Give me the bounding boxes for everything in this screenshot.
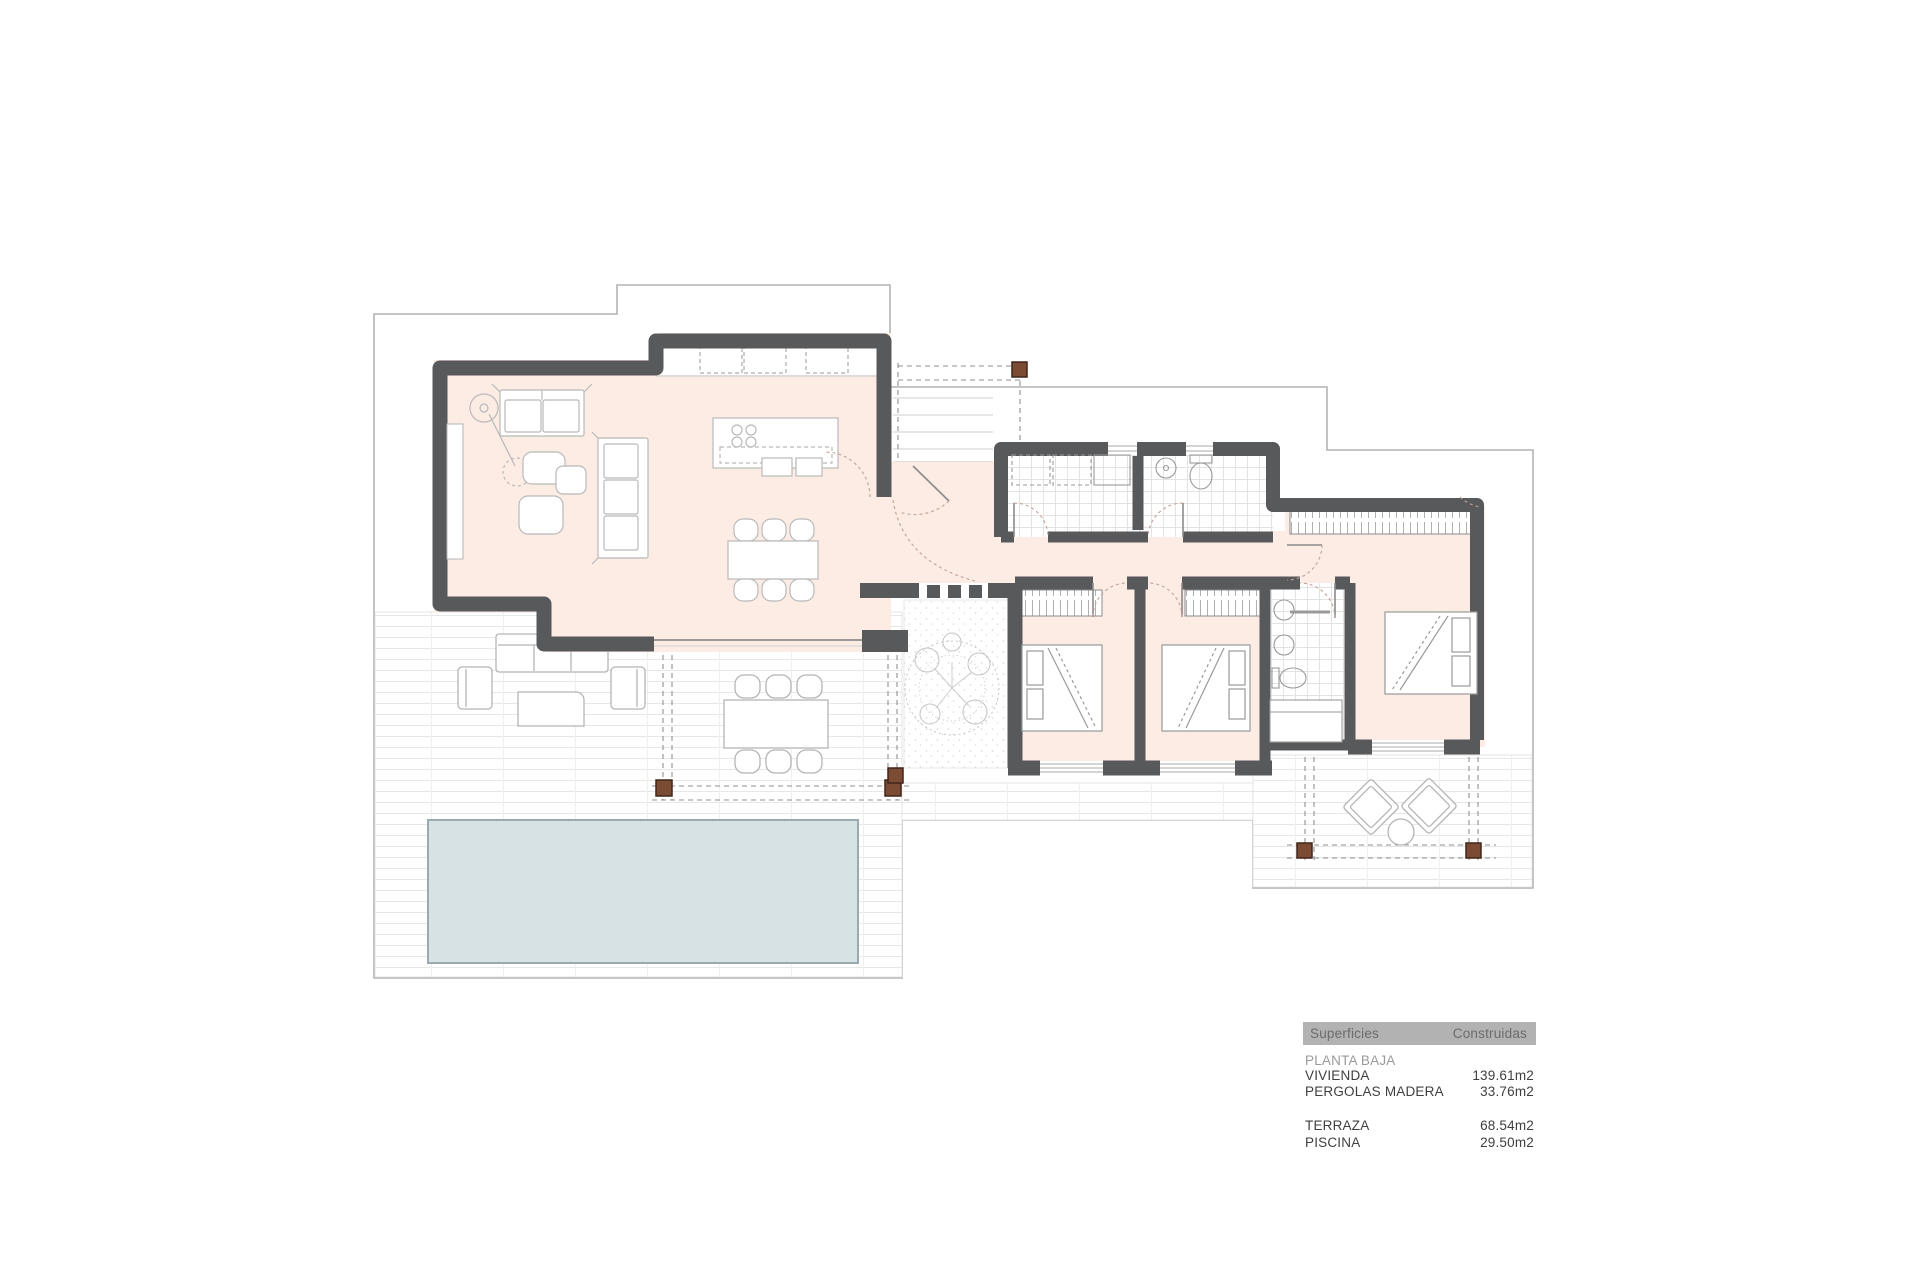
area-label: PERGOLAS MADERA bbox=[1305, 1084, 1444, 1101]
swimming-pool bbox=[428, 820, 858, 963]
table-row: VIVIENDA 139.61m2 bbox=[1305, 1068, 1534, 1085]
areas-col-construidas: Construidas bbox=[1453, 1026, 1527, 1041]
area-value: 68.54m2 bbox=[1480, 1118, 1534, 1135]
areas-table: Superficies Construidas PLANTA BAJA VIVI… bbox=[1303, 1022, 1536, 1152]
area-label: TERRAZA bbox=[1305, 1118, 1369, 1135]
area-label: VIVIENDA bbox=[1305, 1068, 1370, 1085]
areas-section-title: PLANTA BAJA bbox=[1305, 1054, 1534, 1068]
kitchen-wall-cabinets bbox=[656, 345, 886, 376]
area-label: PISCINA bbox=[1305, 1135, 1360, 1152]
courtyard-post bbox=[888, 768, 903, 783]
table-row: TERRAZA 68.54m2 bbox=[1305, 1118, 1534, 1135]
floor-plan-canvas bbox=[0, 0, 1920, 1280]
areas-col-superficies: Superficies bbox=[1310, 1026, 1379, 1041]
areas-table-header: Superficies Construidas bbox=[1303, 1022, 1536, 1045]
area-value: 33.76m2 bbox=[1480, 1084, 1534, 1101]
area-value: 139.61m2 bbox=[1472, 1068, 1534, 1085]
outdoor-dining-set bbox=[724, 675, 828, 773]
floor-plan-page: Superficies Construidas PLANTA BAJA VIVI… bbox=[0, 0, 1920, 1280]
courtyard-garden bbox=[888, 600, 1008, 783]
areas-table-body: PLANTA BAJA VIVIENDA 139.61m2 PERGOLAS M… bbox=[1303, 1054, 1536, 1152]
table-row: PISCINA 29.50m2 bbox=[1305, 1135, 1534, 1152]
pergola-entrance-post bbox=[1012, 362, 1027, 377]
table-row: PERGOLAS MADERA 33.76m2 bbox=[1305, 1084, 1534, 1101]
area-value: 29.50m2 bbox=[1480, 1135, 1534, 1152]
